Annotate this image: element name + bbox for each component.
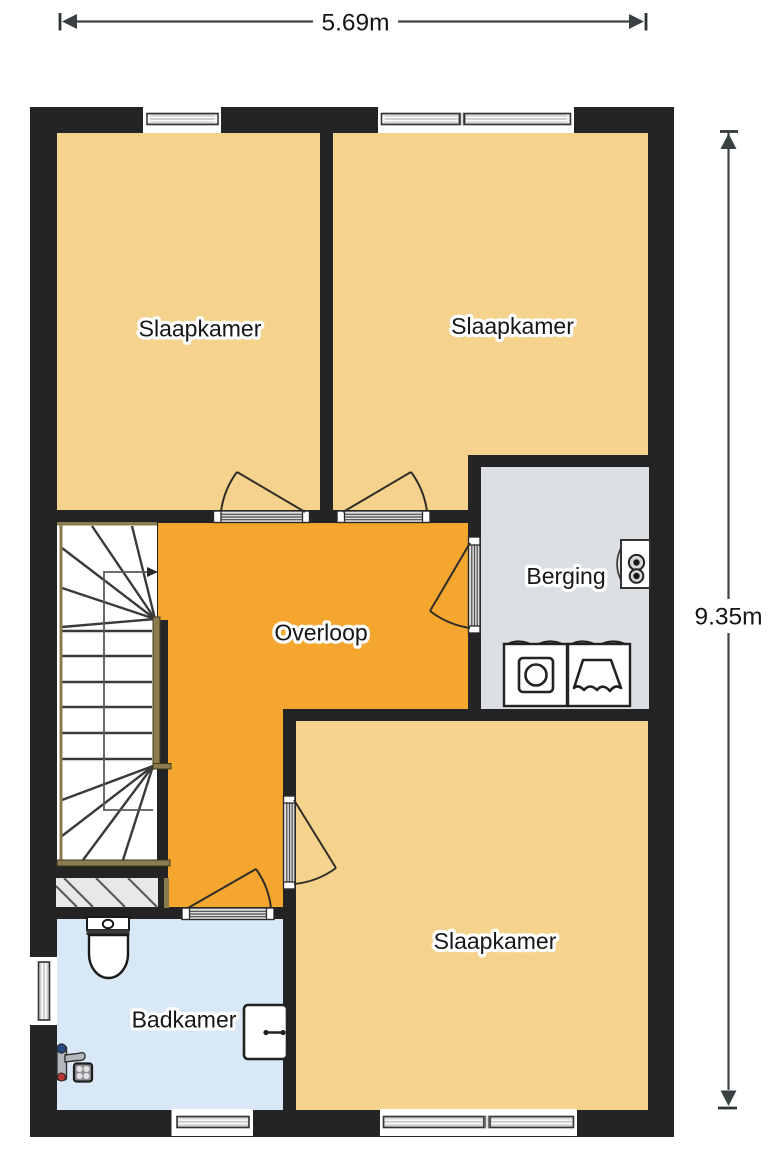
svg-text:5.69m: 5.69m	[321, 10, 389, 37]
svg-text:Badkamer: Badkamer	[132, 1007, 237, 1033]
svg-text:Slaapkamer: Slaapkamer	[434, 928, 557, 954]
svg-text:Overloop: Overloop	[274, 620, 367, 646]
svg-text:Slaapkamer: Slaapkamer	[451, 313, 574, 339]
svg-text:Berging: Berging	[526, 563, 605, 589]
svg-text:9.35m: 9.35m	[694, 604, 762, 631]
svg-text:Slaapkamer: Slaapkamer	[139, 316, 262, 342]
